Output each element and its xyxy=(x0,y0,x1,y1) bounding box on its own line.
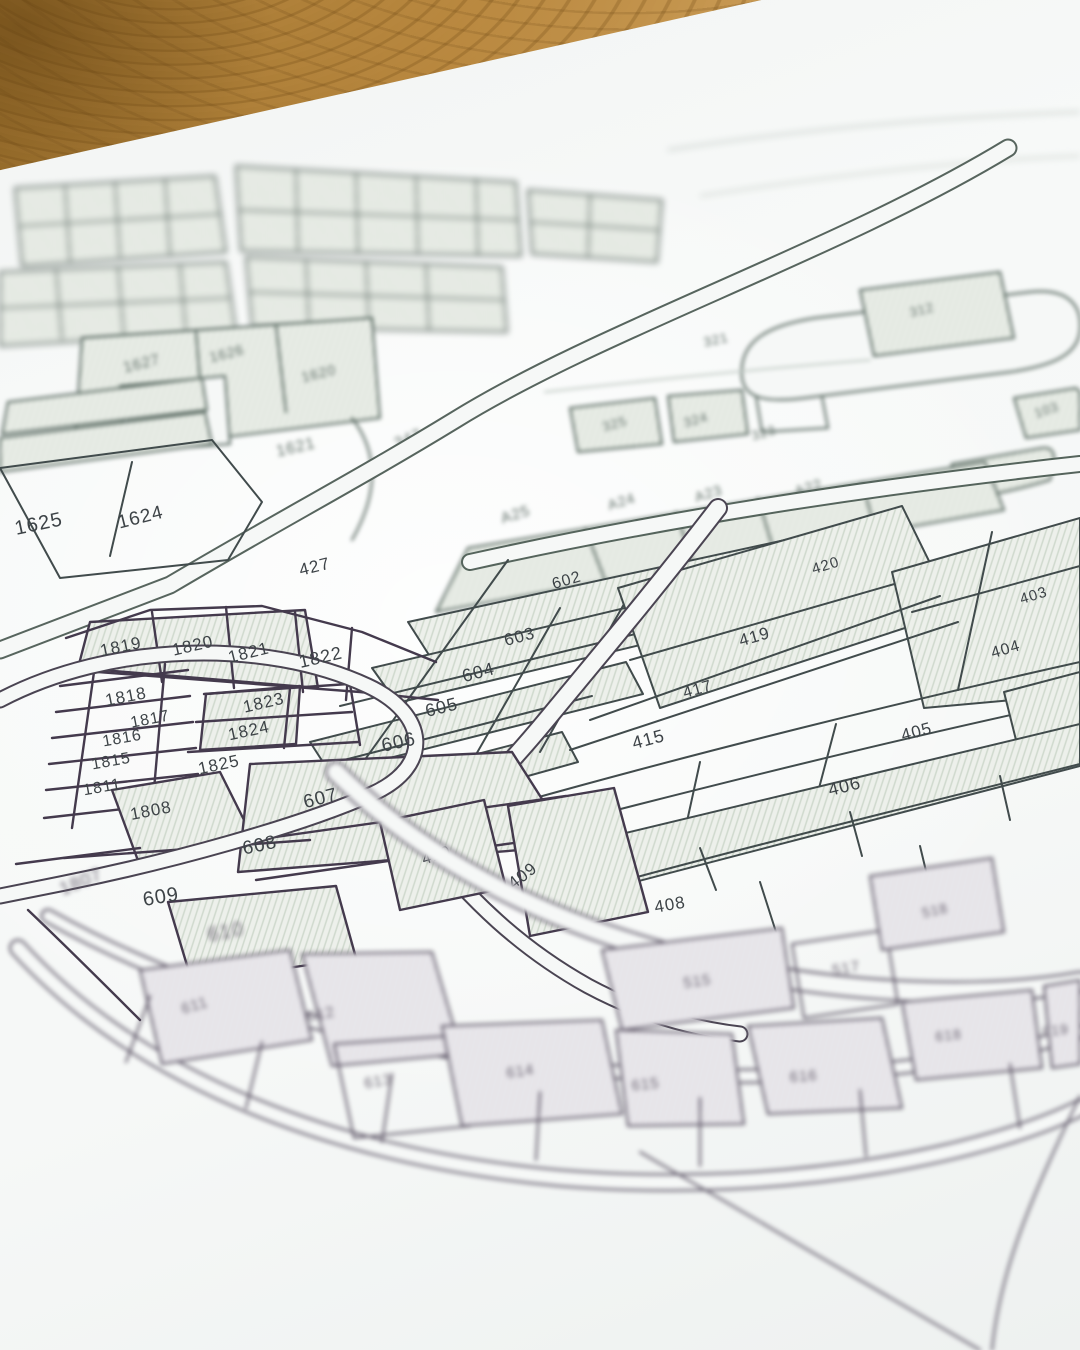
parcel-label-321: 321 xyxy=(702,330,729,350)
plat-map-drawing: 1627162616201621347321312325324323103105… xyxy=(0,0,1080,1350)
parcel-label-408: 408 xyxy=(653,893,687,917)
photo-of-plat-map: 1627162616201621347321312325324323103105… xyxy=(0,0,1080,1350)
parcel-label-1625: 1625 xyxy=(13,508,65,540)
parcel-label-1815: 1815 xyxy=(90,750,132,774)
parcel-label-427: 427 xyxy=(297,554,332,580)
parcel-label-1825: 1825 xyxy=(196,751,241,778)
parcel-label-323: 323 xyxy=(750,422,778,443)
parcel-label-1621: 1621 xyxy=(275,435,317,460)
parcel-label-1807: 1807 xyxy=(57,864,105,899)
parcel-label-615: 615 xyxy=(631,1075,661,1095)
parcel-label-1818: 1818 xyxy=(104,683,149,710)
parcel-label-619: 619 xyxy=(1042,1021,1070,1040)
parcel-label-1816: 1816 xyxy=(101,727,143,751)
parcel-label-A24: A24 xyxy=(606,489,637,512)
parcel-label-A25: A25 xyxy=(499,502,532,527)
parcel-label-618: 618 xyxy=(935,1026,963,1045)
parcel-label-616: 616 xyxy=(789,1067,818,1086)
parcel-label-405: 405 xyxy=(899,718,934,744)
parcel-label-1624: 1624 xyxy=(116,502,166,534)
parcel-label-517: 517 xyxy=(831,958,862,980)
